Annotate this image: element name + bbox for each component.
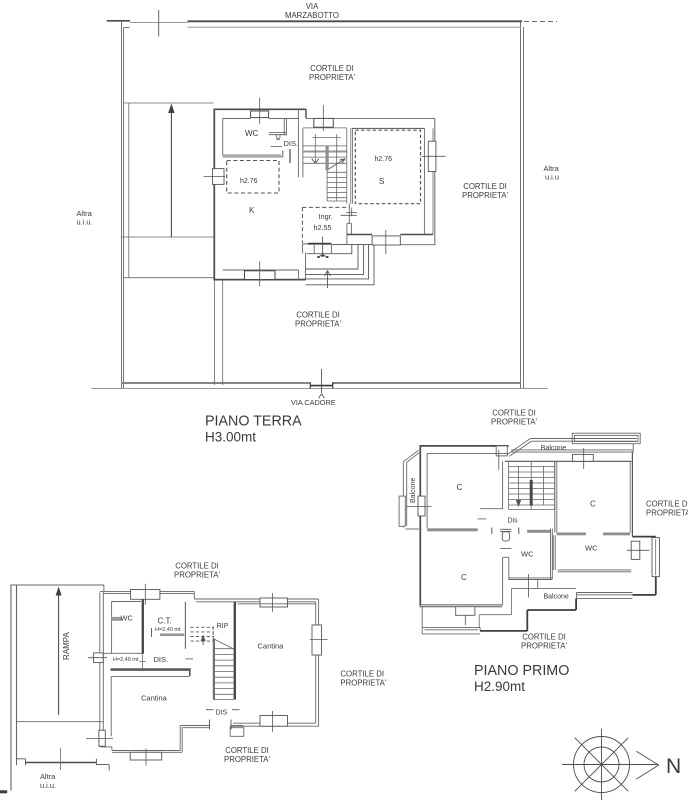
svg-text:Balcone: Balcone [541, 445, 566, 452]
svg-text:CORTILE DI: CORTILE DI [225, 746, 269, 755]
svg-text:CORTILE DI: CORTILE DI [463, 182, 507, 191]
svg-text:h2.55: h2.55 [314, 223, 332, 232]
svg-text:PIANO TERRA: PIANO TERRA [205, 413, 302, 429]
svg-text:DIS.: DIS. [154, 655, 169, 664]
svg-text:H2.90mt: H2.90mt [474, 679, 525, 694]
svg-text:CORTILE DI: CORTILE DI [340, 670, 384, 679]
svg-text:DIS.: DIS. [284, 139, 299, 148]
svg-text:CORTILE DI: CORTILE DI [310, 64, 354, 73]
svg-text:CORTILE DI: CORTILE DI [492, 409, 536, 418]
svg-text:MARZABOTTO: MARZABOTTO [285, 11, 339, 20]
svg-text:Dis: Dis [508, 518, 519, 525]
svg-text:u.i.u.: u.i.u. [77, 218, 93, 227]
svg-text:PROPRIETA': PROPRIETA' [646, 509, 688, 518]
svg-text:u.i.u.: u.i.u. [40, 781, 56, 790]
svg-text:RAMPA: RAMPA [62, 631, 71, 660]
svg-text:S: S [379, 177, 384, 186]
svg-text:PROPRIETA': PROPRIETA' [309, 73, 355, 82]
svg-text:Cantina: Cantina [258, 642, 285, 651]
svg-text:CORTILE DI: CORTILE DI [296, 311, 340, 320]
svg-text:Cantina: Cantina [141, 694, 168, 703]
svg-text:PROPRIETA': PROPRIETA' [174, 571, 220, 580]
svg-text:CORTILE DI: CORTILE DI [522, 633, 566, 642]
svg-text:h2.76: h2.76 [375, 156, 393, 163]
svg-text:C: C [457, 483, 463, 492]
svg-text:WC: WC [120, 614, 133, 623]
svg-text:RIP: RIP [217, 623, 229, 630]
svg-text:PROPRIETA': PROPRIETA' [295, 320, 341, 329]
svg-text:PROPRIETA': PROPRIETA' [224, 755, 270, 764]
svg-text:VIA CADORE: VIA CADORE [291, 398, 336, 407]
svg-text:N: N [666, 755, 681, 778]
svg-text:DIS: DIS [216, 710, 228, 717]
svg-text:PROPRIETA': PROPRIETA' [491, 418, 537, 427]
svg-text:u.i.u: u.i.u [545, 173, 559, 182]
svg-text:WC: WC [585, 544, 598, 553]
svg-text:PROPRIETA': PROPRIETA' [340, 679, 386, 688]
svg-text:Ingr.: Ingr. [319, 212, 333, 221]
svg-text:WC: WC [521, 550, 534, 559]
svg-text:h2.76: h2.76 [240, 178, 258, 185]
svg-text:PROPRIETA': PROPRIETA' [462, 191, 508, 200]
svg-text:C.T.: C.T. [158, 617, 172, 626]
svg-text:CORTILE DI: CORTILE DI [646, 500, 688, 509]
svg-text:C: C [461, 573, 467, 582]
svg-text:CORTILE DI: CORTILE DI [175, 562, 219, 571]
svg-text:H3.00mt: H3.00mt [205, 430, 256, 445]
svg-text:WC: WC [245, 129, 259, 138]
svg-text:K: K [249, 206, 255, 215]
svg-text:VIA: VIA [306, 2, 319, 11]
svg-text:Balcone: Balcone [410, 478, 417, 503]
svg-text:Balcone: Balcone [544, 594, 569, 601]
svg-text:Altra: Altra [40, 772, 56, 781]
svg-text:PROPRIETA': PROPRIETA' [521, 642, 567, 651]
svg-text:C: C [590, 500, 596, 509]
svg-text:PIANO PRIMO: PIANO PRIMO [474, 663, 569, 679]
svg-text:H=2,40 mt: H=2,40 mt [155, 627, 181, 633]
svg-text:H=2,40 mt: H=2,40 mt [113, 657, 139, 663]
